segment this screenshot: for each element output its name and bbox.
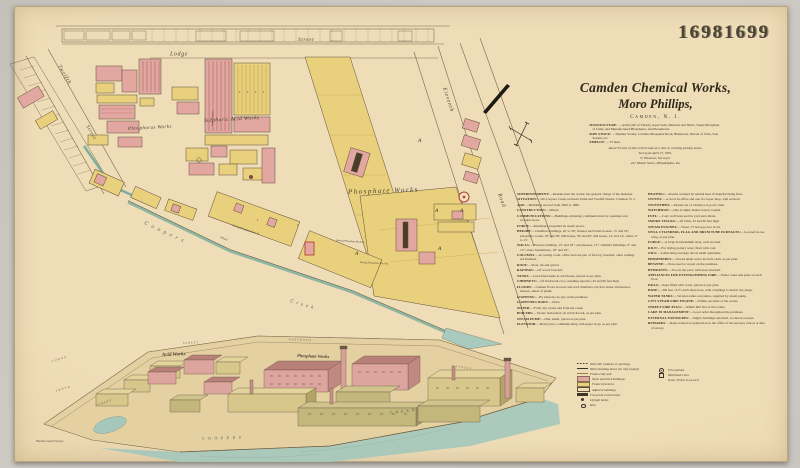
description-entry: REMARKS:—Rates treated on application at… — [648, 321, 768, 330]
description-entry: STILL CYLINDERS, FLAG AND DRUM TUBE FURN… — [648, 230, 768, 239]
page-title-line2: Moro Phillips, — [578, 97, 733, 112]
oil-tank-center — [463, 196, 466, 199]
description-entry: HEATING:—Rooms warmed by natural heat of… — [648, 192, 768, 196]
legend-right-column: Fire hydrant. Watchman's box. Scale, 50 … — [655, 367, 713, 383]
description-entry: COMMUNICATIONS:—Buildings adjoining; com… — [517, 214, 639, 223]
survey-date: Surveyed April 27, 1891. — [578, 151, 733, 155]
description-entry: TANKS:—Lead-lined tanks in acid house, p… — [517, 274, 639, 278]
publisher-imprint: Hexamer General Surveys. — [36, 440, 64, 443]
description-entry: ELEVATOR:—Belt power, communicating with… — [517, 322, 639, 326]
surveyor-address: 427 Walnut Street, Philadelphia, Pa. — [578, 161, 733, 165]
description-entry: BOILERS:—Seven; horizontal; set in brick… — [517, 311, 639, 315]
legend-symbol-icon — [655, 378, 666, 382]
legend-label: Stone and brick buildings. — [592, 377, 625, 381]
legend-label: Wall with windows or openings. — [590, 362, 631, 366]
street-label-lodge: Lodge — [169, 52, 188, 58]
area-label-phosphorus-works: Phosphorus Works — [127, 125, 172, 132]
legend-label: Scale, 50 feet to an inch. — [668, 378, 699, 382]
birdseye-street-label: STREET — [183, 341, 199, 345]
legend-symbol-icon — [577, 387, 590, 393]
description-entry: CITY STEAM FIRE ENGINE:—Within one mile … — [648, 299, 768, 303]
description-entry: FORCE:—Machinery propelled by steam powe… — [517, 224, 639, 228]
description-entry: APPLIANCES FOR EXTINGUISHING FIRE:—Water… — [648, 273, 768, 282]
description-entry: SITUATION:—On Coopers Creek, between Ten… — [517, 197, 639, 201]
description-entry: HYDRANTS:—Two in the yard, with hose att… — [648, 268, 768, 272]
description-entry: PHOSPHORUS:—Stored under water in brick … — [648, 257, 768, 261]
title-note: About 50 tons of lime will be kept at a … — [578, 146, 733, 150]
section-mark-a: A — [434, 208, 439, 214]
section-mark-a: A — [459, 208, 464, 214]
description-entry: KILN:—For drying pottery ware; fired wit… — [648, 246, 768, 250]
creek-label-creek: Creek — [289, 299, 316, 312]
legend-label: Kiln. — [590, 403, 596, 407]
title-location: Camden, N. J. — [578, 114, 733, 120]
description-entry: RAFTERS:—Of wood; boarded. — [517, 268, 639, 272]
description-entry: EXTERNAL EXPOSURES:—Slight; buildings de… — [648, 316, 768, 320]
section-mark-a: A — [437, 246, 442, 252]
legend-row: Scale, 50 feet to an inch. — [655, 377, 713, 382]
legend-label: Upright boiler. — [590, 398, 609, 402]
description-entry: PAILS:—Kept filled with water, placed as… — [648, 283, 768, 287]
building-label-acid-chambers: Acid Chambers — [211, 110, 215, 127]
legend-label: Fire hydrant. — [668, 368, 685, 372]
description-entry: WATER TANKS:—Wooden tanks on trestles, s… — [648, 294, 768, 298]
birdseye-street-tenth: TENTH — [55, 384, 71, 393]
legend-row: Kiln. — [577, 403, 651, 408]
legend-symbol-icon — [577, 403, 588, 407]
legend-label: Frame-clad wall. — [590, 372, 612, 376]
scanned-map-page: Street Lodge Twelfth Street Eleventh Roa… — [0, 0, 800, 468]
birdseye-label-acid-works: Acid Works — [161, 352, 186, 358]
description-entry: CHIMNEYS:—Of brickwork; two, standing se… — [517, 279, 639, 283]
title-detail-line: EMPLOY: —75 men. — [590, 140, 722, 144]
description-entry: HEIGHT:—Chamber buildings, 20' to 30'; f… — [517, 229, 639, 242]
legend-label: Adjacent buildings. — [592, 388, 617, 392]
description-entry: WATCHMAN:—One at night; makes hourly rou… — [648, 208, 768, 212]
description-entry: COLUMNS:—In casting room, office and one… — [517, 253, 639, 262]
street-label-top: Street — [298, 37, 314, 43]
sheet-number: 16981699 — [678, 22, 770, 44]
legend-left-column: Wall with windows or openings. Wall exte… — [577, 361, 651, 408]
legend-label: Fire-proof construction. — [590, 393, 621, 397]
description-entry: AGE:—Buildings erected from 1850 to 1882… — [517, 203, 639, 207]
description-entry: SMOKE STACKS:—Of brick, 45 and 60 feet h… — [648, 219, 768, 223]
description-entry: STEAM PUMP:—One; small, placed as per pl… — [517, 317, 639, 321]
street-label-road: Road — [496, 192, 507, 209]
description-entry: FORGE:—A forge in blacksmith shop, well … — [648, 240, 768, 244]
description-entry: WATER:—From city works and from the cree… — [517, 306, 639, 310]
description-entry: FLOORS:—Cement floors in retort and acid… — [517, 285, 639, 294]
description-entry: BENZINE:—None used or stored on the prem… — [648, 262, 768, 266]
legend-symbol-icon — [655, 368, 666, 372]
description-entry: CONSTRUCTION:—Mixed. — [517, 208, 639, 212]
page-title-line1: Camden Chemical Works, — [578, 80, 733, 96]
legend-label: Watchman's box. — [668, 373, 689, 377]
legend-symbol-icon — [577, 373, 588, 374]
legend-label: Frame structures. — [592, 382, 615, 386]
compass-cross-icon — [509, 122, 532, 146]
legend-symbol-icon — [577, 398, 588, 402]
legend-symbol-icon — [577, 368, 588, 369]
street-label-eleventh: Eleventh — [441, 86, 455, 113]
plan-map: Street Lodge Twelfth Street Eleventh Roa… — [10, 26, 552, 349]
description-entry: STREET FIRE PLUG:—Within 600 feet of the… — [648, 305, 768, 309]
description-entry: STOVES:—A stove in office and one in coo… — [648, 197, 768, 201]
top-row-lots — [62, 29, 434, 42]
title-detail-line: RAW STOCK: —Sulphur Stones, Carolina Pho… — [590, 132, 722, 140]
title-block: Camden Chemical Works, Moro Phillips, Ca… — [578, 80, 733, 165]
description-entry: HOSE:—300 feet of 2½-inch linen hose, wi… — [648, 288, 768, 292]
description-column-left: SUPERINTENDENT:—Resides near the works; … — [517, 192, 639, 327]
legend-symbol-icon — [655, 373, 666, 377]
description-entry: FUEL:—Coal; well bestowed in yard and ce… — [648, 214, 768, 218]
section-mark-a: A — [417, 138, 422, 144]
wharf-label: Wharf — [220, 235, 230, 242]
legend-symbol-icon — [577, 363, 588, 364]
description-entry: LIGHTING:—By lanterns; no gas on the pre… — [517, 295, 639, 299]
section-mark-a: A — [354, 251, 359, 257]
description-entry: LIGHTNING RODS:—None. — [517, 300, 639, 304]
plan-buildings — [17, 57, 500, 318]
birdseye-view: LODGE TENTH STREET STREET ELEVENTH STREE… — [36, 336, 560, 462]
legend-label: Wall extending above the roof (coped). — [590, 367, 639, 371]
description-column-right: HEATING:—Rooms warmed by natural heat of… — [648, 192, 768, 331]
description-entry: ROOF:—Slate, tin and gravel. — [517, 263, 639, 267]
description-entry: STEAM ENGINES:—Three; 75 horse-power in … — [648, 225, 768, 229]
title-detail-line: MANUFACTURE: —Acids (Oil of Vitriol), Aq… — [590, 123, 722, 131]
description-entry: CARE IN MANAGEMENT:—Good order throughou… — [648, 310, 768, 314]
description-entry: WALLS:—Furnace building, 13″ and 18″; st… — [517, 243, 639, 252]
surveyor-name: E. Hexamer, Surveyor. — [578, 156, 733, 160]
legend-symbol-icon — [577, 393, 588, 396]
description-entry: STOVEPIPES:—Passed out of windows in goo… — [648, 203, 768, 207]
street-label-twelfth: Twelfth — [56, 64, 73, 86]
birdseye-street-lodge: LODGE — [51, 355, 68, 363]
title-details: MANUFACTURE: —Acids (Oil of Vitriol), Aq… — [590, 123, 722, 144]
description-entry: SUPERINTENDENT:—Resides near the works; … — [517, 192, 639, 196]
creek-label-coopers: Coopers — [143, 220, 188, 245]
description-entry: OILS:—Lubricating and sign oils in small… — [648, 251, 768, 255]
